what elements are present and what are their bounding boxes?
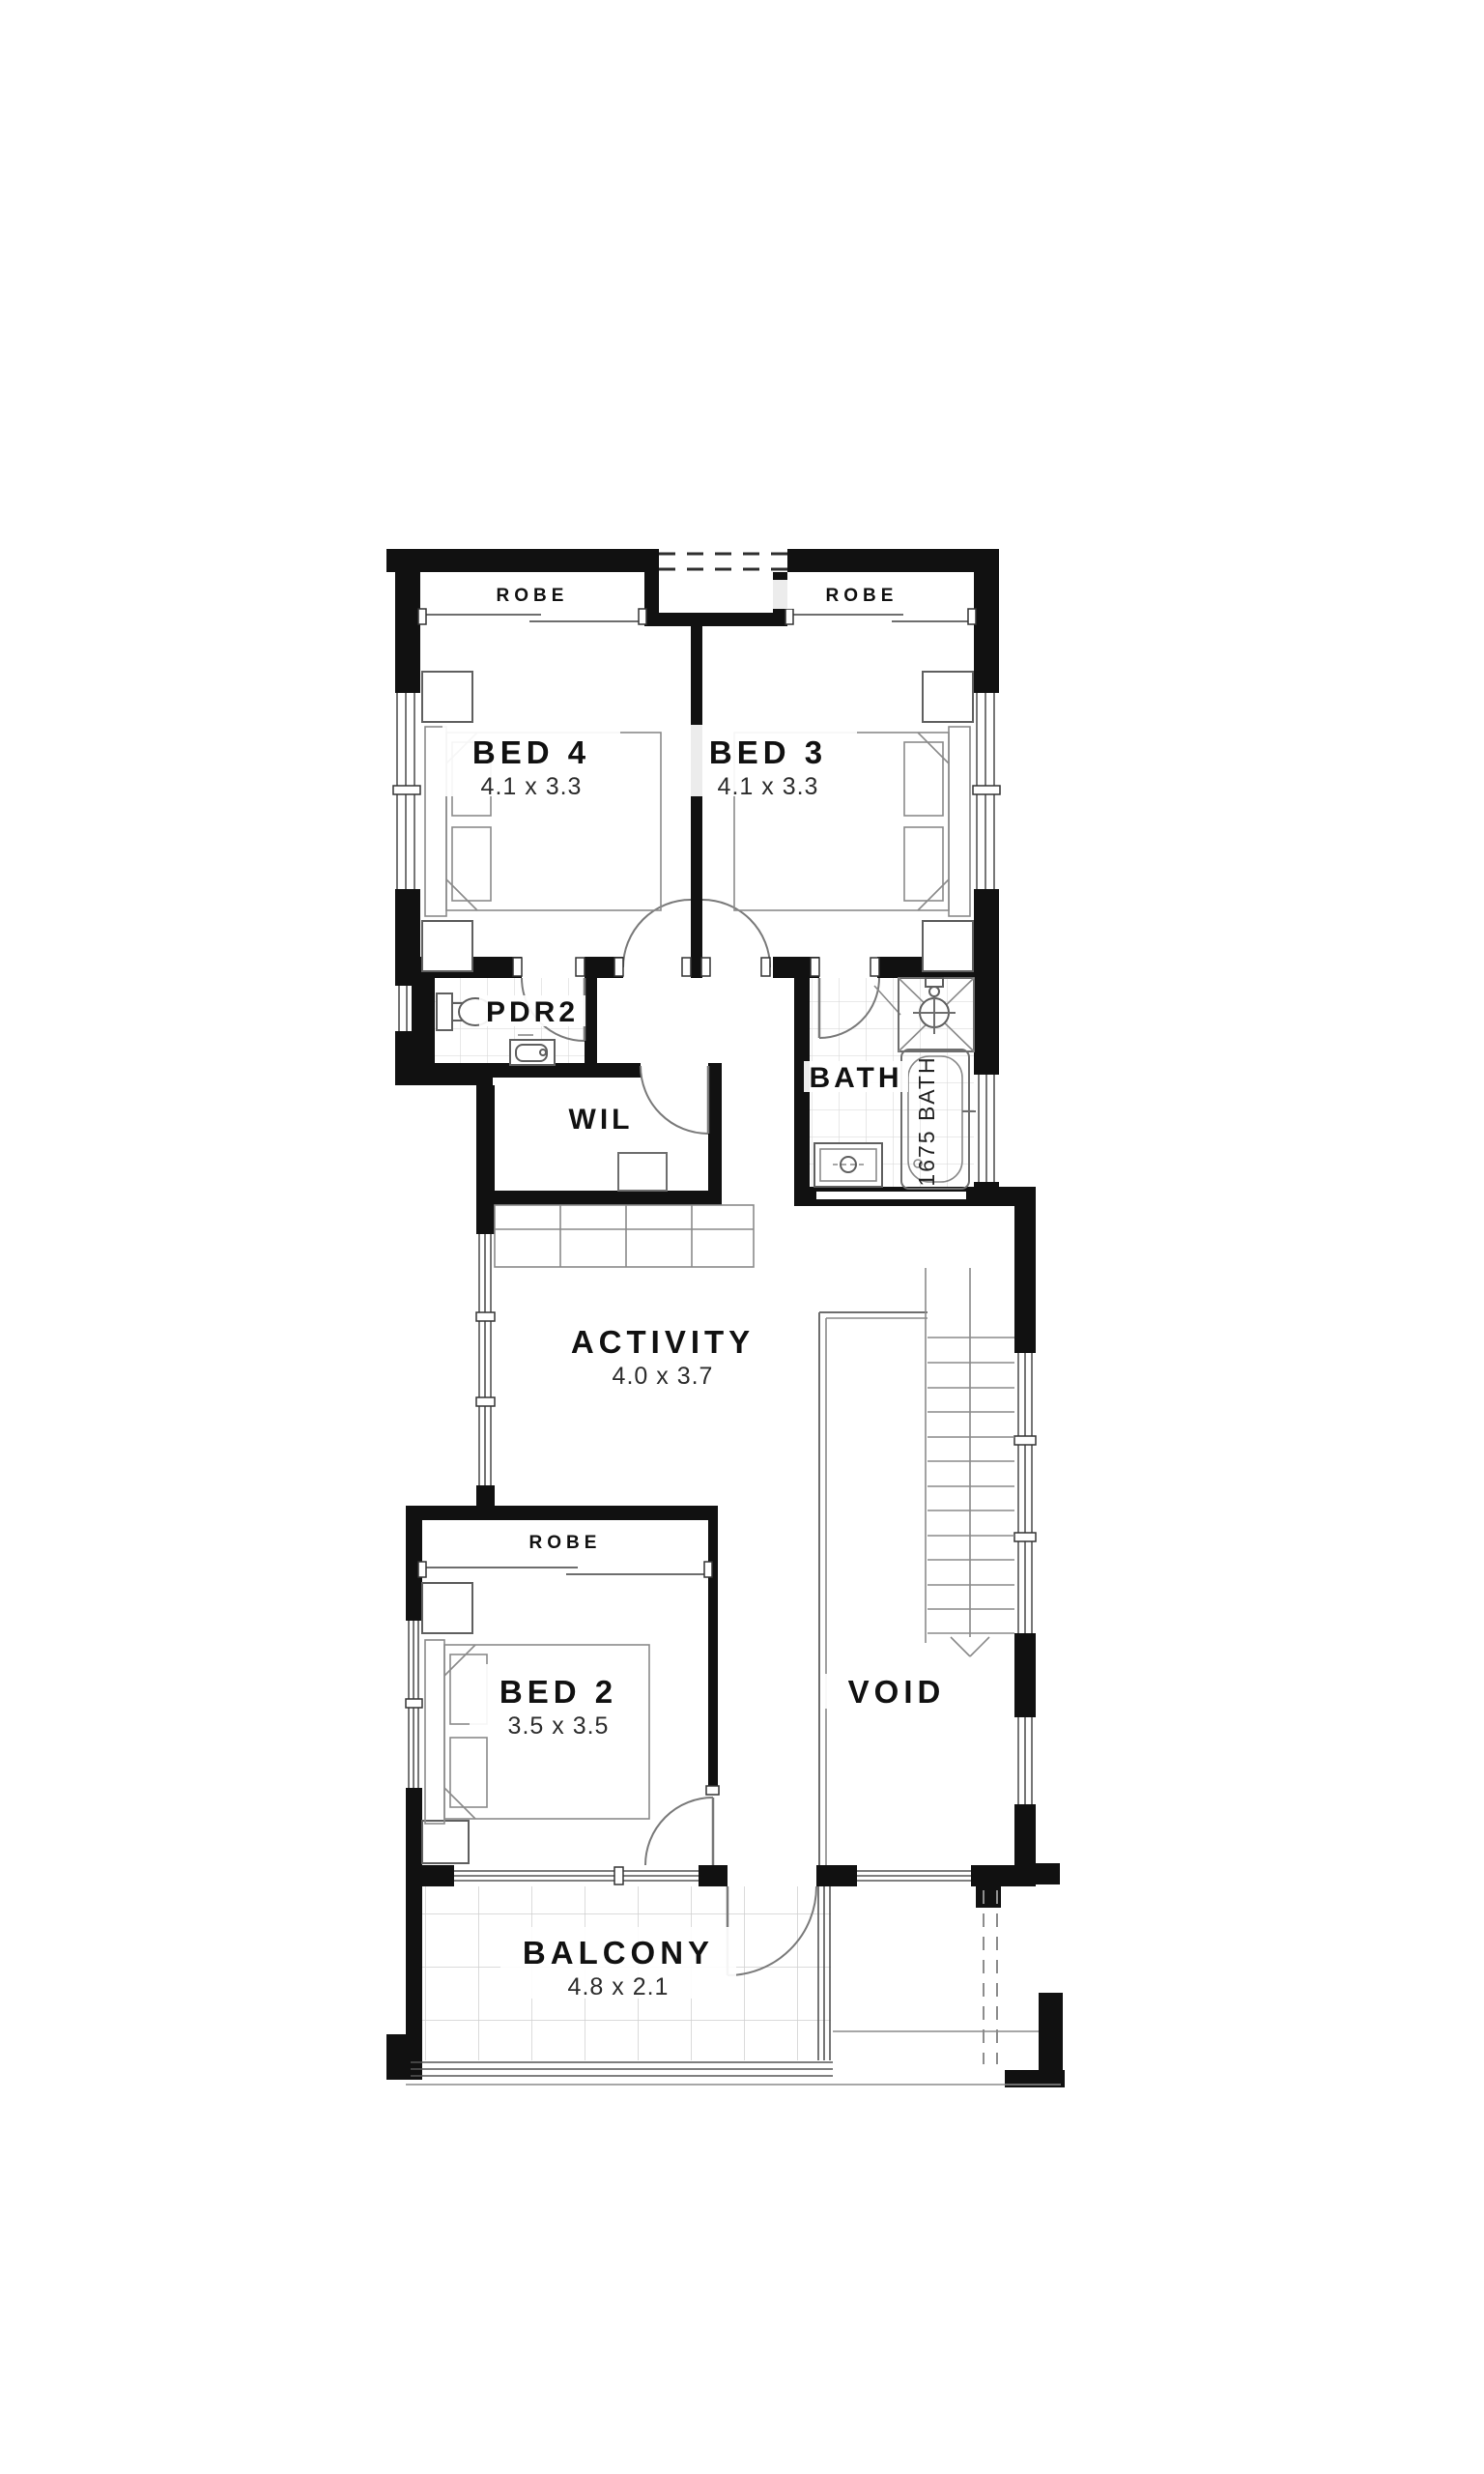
bed3-robe-label: ROBE — [826, 586, 899, 606]
bed3-name: BED 3 — [709, 734, 827, 770]
void-window — [1014, 1717, 1036, 1804]
bath-window — [974, 1075, 999, 1182]
bed2-window — [406, 1621, 422, 1788]
pdr2-name: PDR2 — [486, 996, 579, 1028]
bed2-dims: 3.5 x 3.5 — [508, 1712, 610, 1740]
bath-name: BATH — [809, 1062, 902, 1094]
balcony-dims: 4.8 x 2.1 — [568, 1973, 670, 2000]
bed4-furniture — [422, 672, 661, 971]
wil-door — [641, 1066, 708, 1134]
bed3-dims: 4.1 x 3.3 — [718, 773, 819, 800]
bathtub-label: 1675 BATH — [914, 1055, 939, 1186]
activity-window — [476, 1234, 495, 1485]
top-niche-dashed-opening — [659, 554, 787, 569]
floor-plan-drawing: 1675 BATH — [0, 0, 1484, 2474]
wil-shelf — [618, 1153, 667, 1191]
pdr2-window — [395, 986, 412, 1031]
activity-dims: 4.0 x 3.7 — [613, 1363, 714, 1390]
bed4-robe-slider — [418, 609, 646, 624]
void-name: VOID — [848, 1674, 946, 1710]
bed3-robe-slider — [785, 609, 976, 624]
floor-plan-page: 1675 BATH — [0, 0, 1484, 2474]
stair-treads — [927, 1338, 1014, 1633]
staircase — [819, 1268, 1014, 1865]
activity-cabinet — [495, 1205, 754, 1267]
bed2-robe-slider — [418, 1562, 712, 1577]
bed3-furniture — [734, 672, 973, 971]
bed3-window — [973, 693, 1000, 889]
bed4-name: BED 4 — [472, 734, 590, 770]
balcony-name: BALCONY — [523, 1935, 714, 1971]
wil-name: WIL — [569, 1104, 634, 1136]
activity-name: ACTIVITY — [571, 1324, 755, 1360]
bed4-robe-label: ROBE — [497, 586, 569, 606]
basin-icon — [510, 1035, 555, 1065]
bed4-window — [393, 693, 420, 889]
bed2-name: BED 2 — [499, 1674, 617, 1710]
bed2-door — [645, 1786, 719, 1865]
bed4-dims: 4.1 x 3.3 — [481, 773, 583, 800]
bath-wall-niche — [816, 1192, 966, 1199]
stair-direction-arrow — [951, 1637, 989, 1656]
bath-vanity-icon — [814, 1143, 882, 1187]
stair-window — [1014, 1353, 1036, 1633]
bed2-robe-label: ROBE — [529, 1533, 602, 1553]
